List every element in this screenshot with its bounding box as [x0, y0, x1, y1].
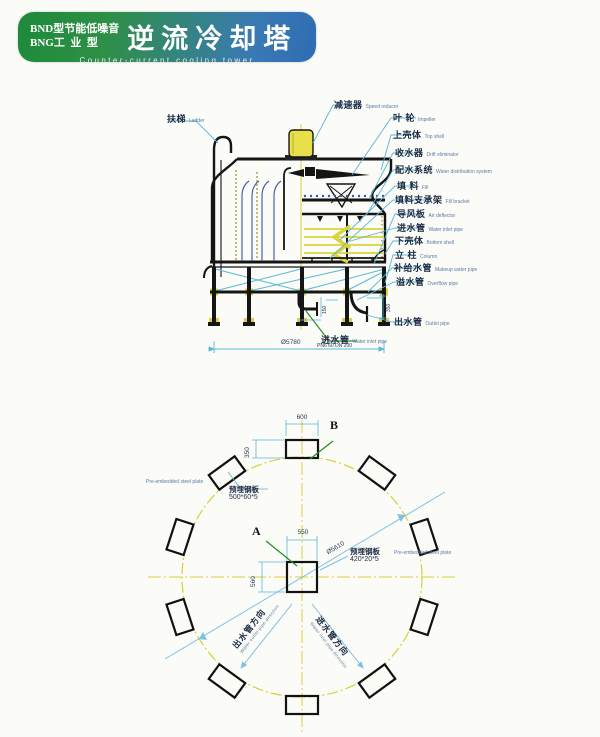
tower-shell	[204, 159, 391, 278]
part-label-overflow-pipe: 溢水管Overflow pipe	[396, 273, 458, 289]
plan-dim-550: 550	[291, 530, 315, 537]
model-line2: BNG工 业 型	[30, 37, 98, 49]
outer-plate-label-en: Pre-embedded steel plate	[146, 480, 203, 485]
plate-letter-B: B	[330, 419, 338, 431]
part-label-impeller: 叶 轮Impeller	[393, 109, 436, 125]
plan-drawing	[148, 420, 458, 733]
fill-pack	[304, 226, 383, 262]
part-label-water-distribution: 配水系统Water distribution system	[395, 161, 492, 177]
model-codes: BND型节能低噪音BNG工 业 型	[30, 23, 119, 51]
page: BND型节能低噪音BNG工 业 型 逆流冷却塔 Counter-current …	[0, 0, 600, 737]
overall-dim-value: Ø5780	[281, 340, 301, 347]
plan-dim-600: 600	[290, 415, 314, 422]
drawings-canvas	[0, 0, 600, 737]
model-line1: BND型节能低噪音	[30, 23, 119, 35]
part-label-drift-eliminator: 收水器Drift eliminator	[395, 144, 459, 160]
part-label-speed-reducer: 减速器Speed reducer	[334, 96, 398, 112]
center-plate-label: 预埋钢板 420*20*5	[350, 547, 380, 564]
header-banner: BND型节能低噪音BNG工 业 型 逆流冷却塔 Counter-current …	[18, 12, 316, 62]
section-drawing	[168, 105, 430, 353]
plan-dim-350: 350	[245, 447, 252, 458]
ladder	[214, 137, 231, 277]
dim-350-section: 350	[387, 304, 392, 312]
product-title: 逆流冷却塔	[127, 17, 297, 56]
part-label-ladder: 扶梯Ladder	[167, 110, 205, 126]
part-label-top-shell: 上壳体Top shell	[393, 126, 444, 142]
casing-panels	[242, 181, 281, 261]
diameter-line	[165, 492, 445, 668]
inlet-pipe-spec: PN6 60 DN 200	[317, 344, 352, 349]
dim-150: 150	[323, 306, 328, 314]
product-subtitle: Counter-current cooling tower	[18, 56, 316, 65]
center-plate-label-en: Pre-embedded steel plate	[394, 551, 451, 556]
outer-plate-label: 预埋钢板 500*60*5	[229, 485, 259, 502]
plan-dim-560: 560	[251, 576, 258, 587]
plan-dimensions	[228, 420, 318, 592]
plate-letter-A: A	[252, 525, 261, 537]
water-distribution	[302, 214, 385, 262]
part-label-outlet-pipe: 出水管Outlet pipe	[394, 313, 450, 329]
motor	[285, 130, 317, 160]
